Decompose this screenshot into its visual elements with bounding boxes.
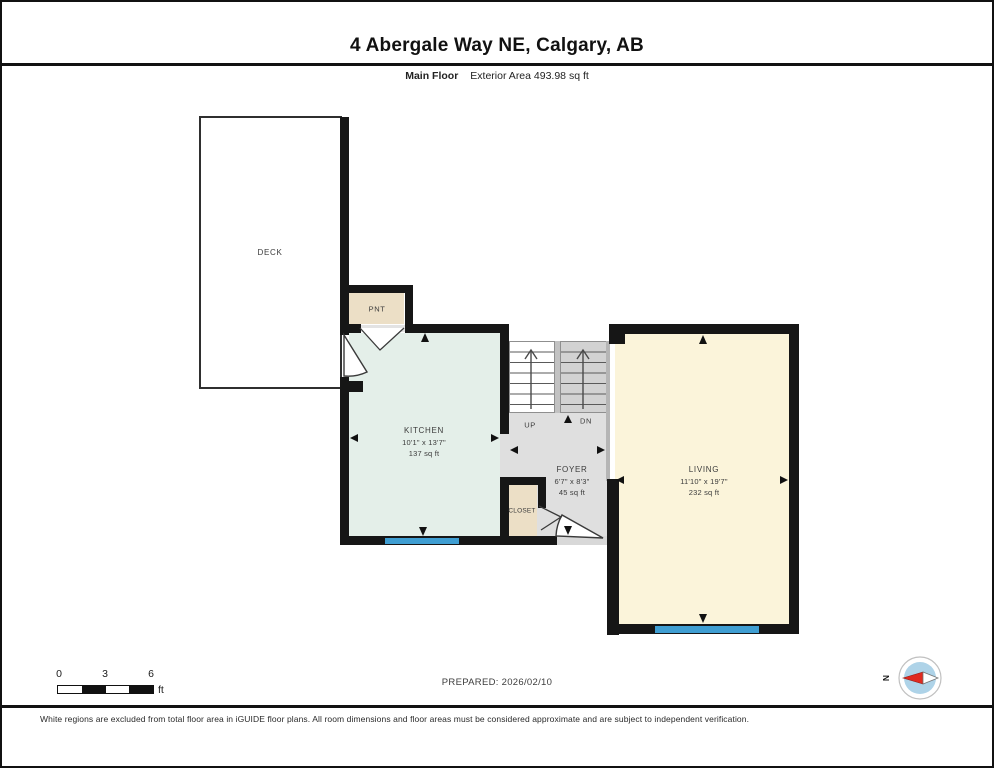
stairs-up [509, 341, 555, 413]
floor-name: Main Floor [405, 70, 458, 82]
wall-segment [538, 477, 546, 508]
wall-segment [349, 381, 363, 392]
living-label: LIVING [680, 464, 728, 476]
wall-segment [340, 324, 361, 333]
footer-divider [2, 705, 992, 708]
living-label-block: LIVING 11'10" x 19'7" 232 sq ft [680, 464, 728, 499]
stairs-down-label: DN [580, 417, 592, 426]
exterior-area: Exterior Area 493.98 sq ft [470, 70, 588, 82]
kitchen-window [385, 538, 459, 544]
wall-segment [340, 377, 349, 545]
wall-segment [405, 324, 509, 333]
foyer-kitchen-opening [500, 434, 509, 477]
pantry-sill [360, 325, 405, 332]
kitchen-label-block: KITCHEN 10'1" x 13'7" 137 sq ft [402, 425, 446, 460]
foyer-dimensions: 6'7" x 8'3" [555, 476, 590, 487]
wall-segment [789, 324, 799, 634]
closet-label: CLOSET [508, 508, 535, 515]
header-divider [2, 63, 992, 66]
compass-north-label: N [881, 675, 891, 681]
kitchen-label: KITCHEN [402, 425, 446, 437]
foyer-label-block: FOYER 6'7" x 8'3" 45 sq ft [555, 464, 590, 499]
wall-segment [607, 479, 619, 635]
entry-threshold [556, 536, 607, 545]
wall-segment [609, 324, 799, 334]
kitchen-area: 137 sq ft [402, 448, 446, 459]
pantry-label: PNT [369, 305, 386, 314]
stair-rail-partition [606, 341, 610, 481]
living-window [655, 626, 759, 633]
prepared-date: PREPARED: 2026/02/10 [2, 677, 992, 688]
living-area: 232 sq ft [680, 487, 728, 498]
foyer-area: 45 sq ft [555, 487, 590, 498]
stairs-down [560, 341, 607, 413]
living-dimensions: 11'10" x 19'7" [680, 476, 728, 487]
disclaimer-text: White regions are excluded from total fl… [40, 714, 962, 724]
foyer-label: FOYER [555, 464, 590, 476]
kitchen-dimensions: 10'1" x 13'7" [402, 437, 446, 448]
deck-label: DECK [257, 247, 282, 259]
wall-segment [340, 285, 413, 293]
stairs-up-label: UP [524, 421, 536, 430]
page-title: 4 Abergale Way NE, Calgary, AB [2, 35, 992, 57]
wall-segment [500, 324, 509, 434]
wall-segment [340, 117, 349, 335]
floor-subtitle: Main Floor Exterior Area 493.98 sq ft [2, 70, 992, 82]
floorplan-page: 4 Abergale Way NE, Calgary, AB Main Floo… [0, 0, 994, 768]
